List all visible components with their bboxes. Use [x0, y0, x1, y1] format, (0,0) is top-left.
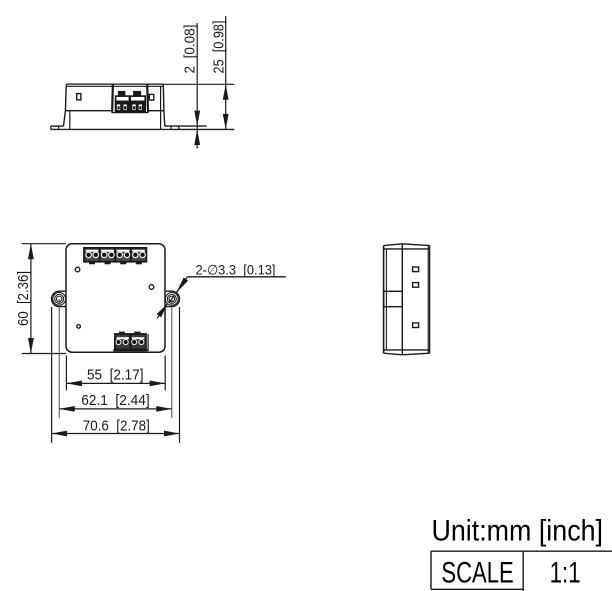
svg-text:25 [0.98]: 25 [0.98]	[211, 21, 228, 74]
svg-text:70.6 [2.78]: 70.6 [2.78]	[83, 417, 150, 434]
svg-text:55 [2.17]: 55 [2.17]	[87, 367, 144, 384]
svg-text:60 [2.36]: 60 [2.36]	[15, 271, 32, 326]
svg-text:2 [0.08]: 2 [0.08]	[181, 25, 198, 74]
svg-text:2-∅3.3 [0.13]: 2-∅3.3 [0.13]	[196, 263, 276, 278]
svg-text:62.1 [2.44]: 62.1 [2.44]	[81, 392, 150, 409]
svg-text:SCALE: SCALE	[441, 557, 513, 590]
svg-text:1:1: 1:1	[550, 557, 581, 590]
svg-text:Unit:mm [inch]: Unit:mm [inch]	[432, 515, 604, 548]
